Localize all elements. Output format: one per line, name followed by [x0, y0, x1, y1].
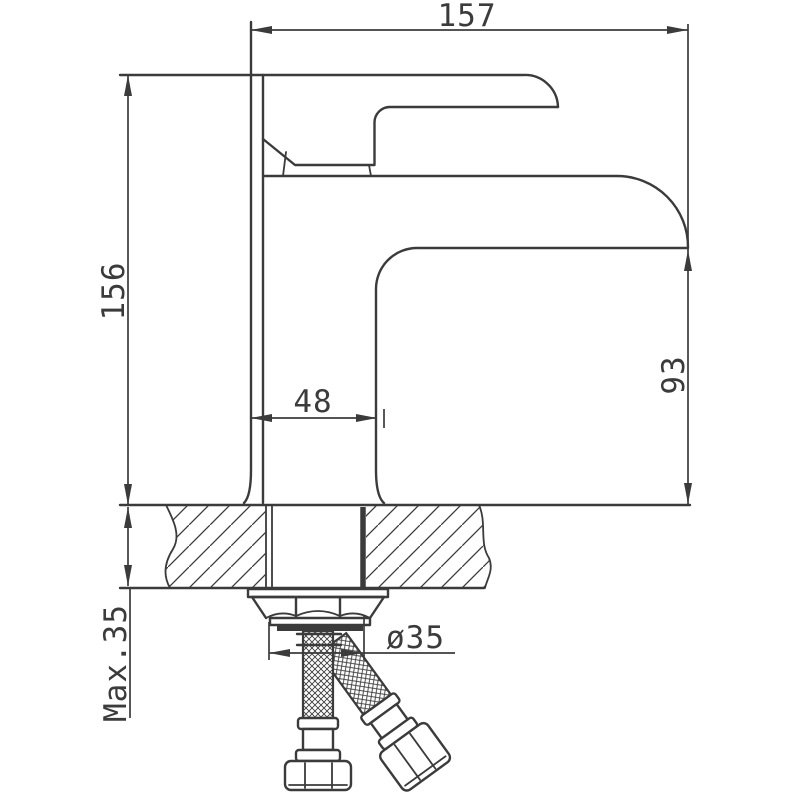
dim-157-label: 157 — [438, 0, 497, 34]
mounting-hole-edge-left — [266, 505, 272, 588]
dimension-body-width: 48 — [251, 384, 384, 428]
handle-neck-line-right — [369, 165, 371, 176]
spout-underside — [376, 248, 688, 503]
handle-top-line — [120, 75, 558, 107]
dimension-overall-height: 156 — [96, 75, 132, 505]
dim-156-arrow-top — [124, 75, 132, 96]
dim-48-label: 48 — [293, 384, 332, 420]
dim-93-arrow-top — [684, 250, 692, 271]
countertop-cross-section — [120, 505, 690, 588]
spout-top-curve — [263, 176, 688, 247]
dim-max35-arrow-bottom — [124, 565, 132, 586]
shank-lower-plate — [270, 618, 370, 625]
dim-max35-label: Max.35 — [98, 604, 134, 722]
dim-dia35-arrow-left — [269, 649, 290, 657]
dim-dia35-label: ø35 — [386, 620, 445, 656]
countertop-hatch-left — [166, 505, 266, 588]
technical-drawing-canvas: 157 156 93 48 Max.35 ø35 — [0, 0, 800, 800]
dimension-max-deck-thickness: Max.35 — [98, 507, 134, 722]
dim-157-arrow-right — [667, 26, 688, 34]
dim-93-label: 93 — [656, 355, 692, 394]
dim-156-label: 156 — [96, 262, 132, 321]
faucet-drawing-svg: 157 156 93 48 Max.35 ø35 — [0, 0, 800, 800]
hose-tube-vertical — [303, 729, 333, 750]
dim-157-arrow-left — [251, 26, 272, 34]
body-left-edge-outer — [244, 22, 251, 503]
dim-48-arrow-right — [356, 414, 377, 422]
dim-156-arrow-bottom — [124, 484, 132, 505]
dim-93-arrow-bottom — [684, 483, 692, 504]
countertop-hatch-right — [366, 505, 491, 588]
dim-max35-arrow-top — [124, 507, 132, 528]
handle-underside — [263, 107, 558, 165]
faucet-outline — [120, 22, 688, 503]
hose-collar-vertical-2 — [296, 750, 340, 761]
dimension-spout-height: 93 — [656, 250, 692, 504]
dim-48-arrow-left — [251, 414, 272, 422]
hose-collar-vertical-1 — [298, 718, 338, 729]
